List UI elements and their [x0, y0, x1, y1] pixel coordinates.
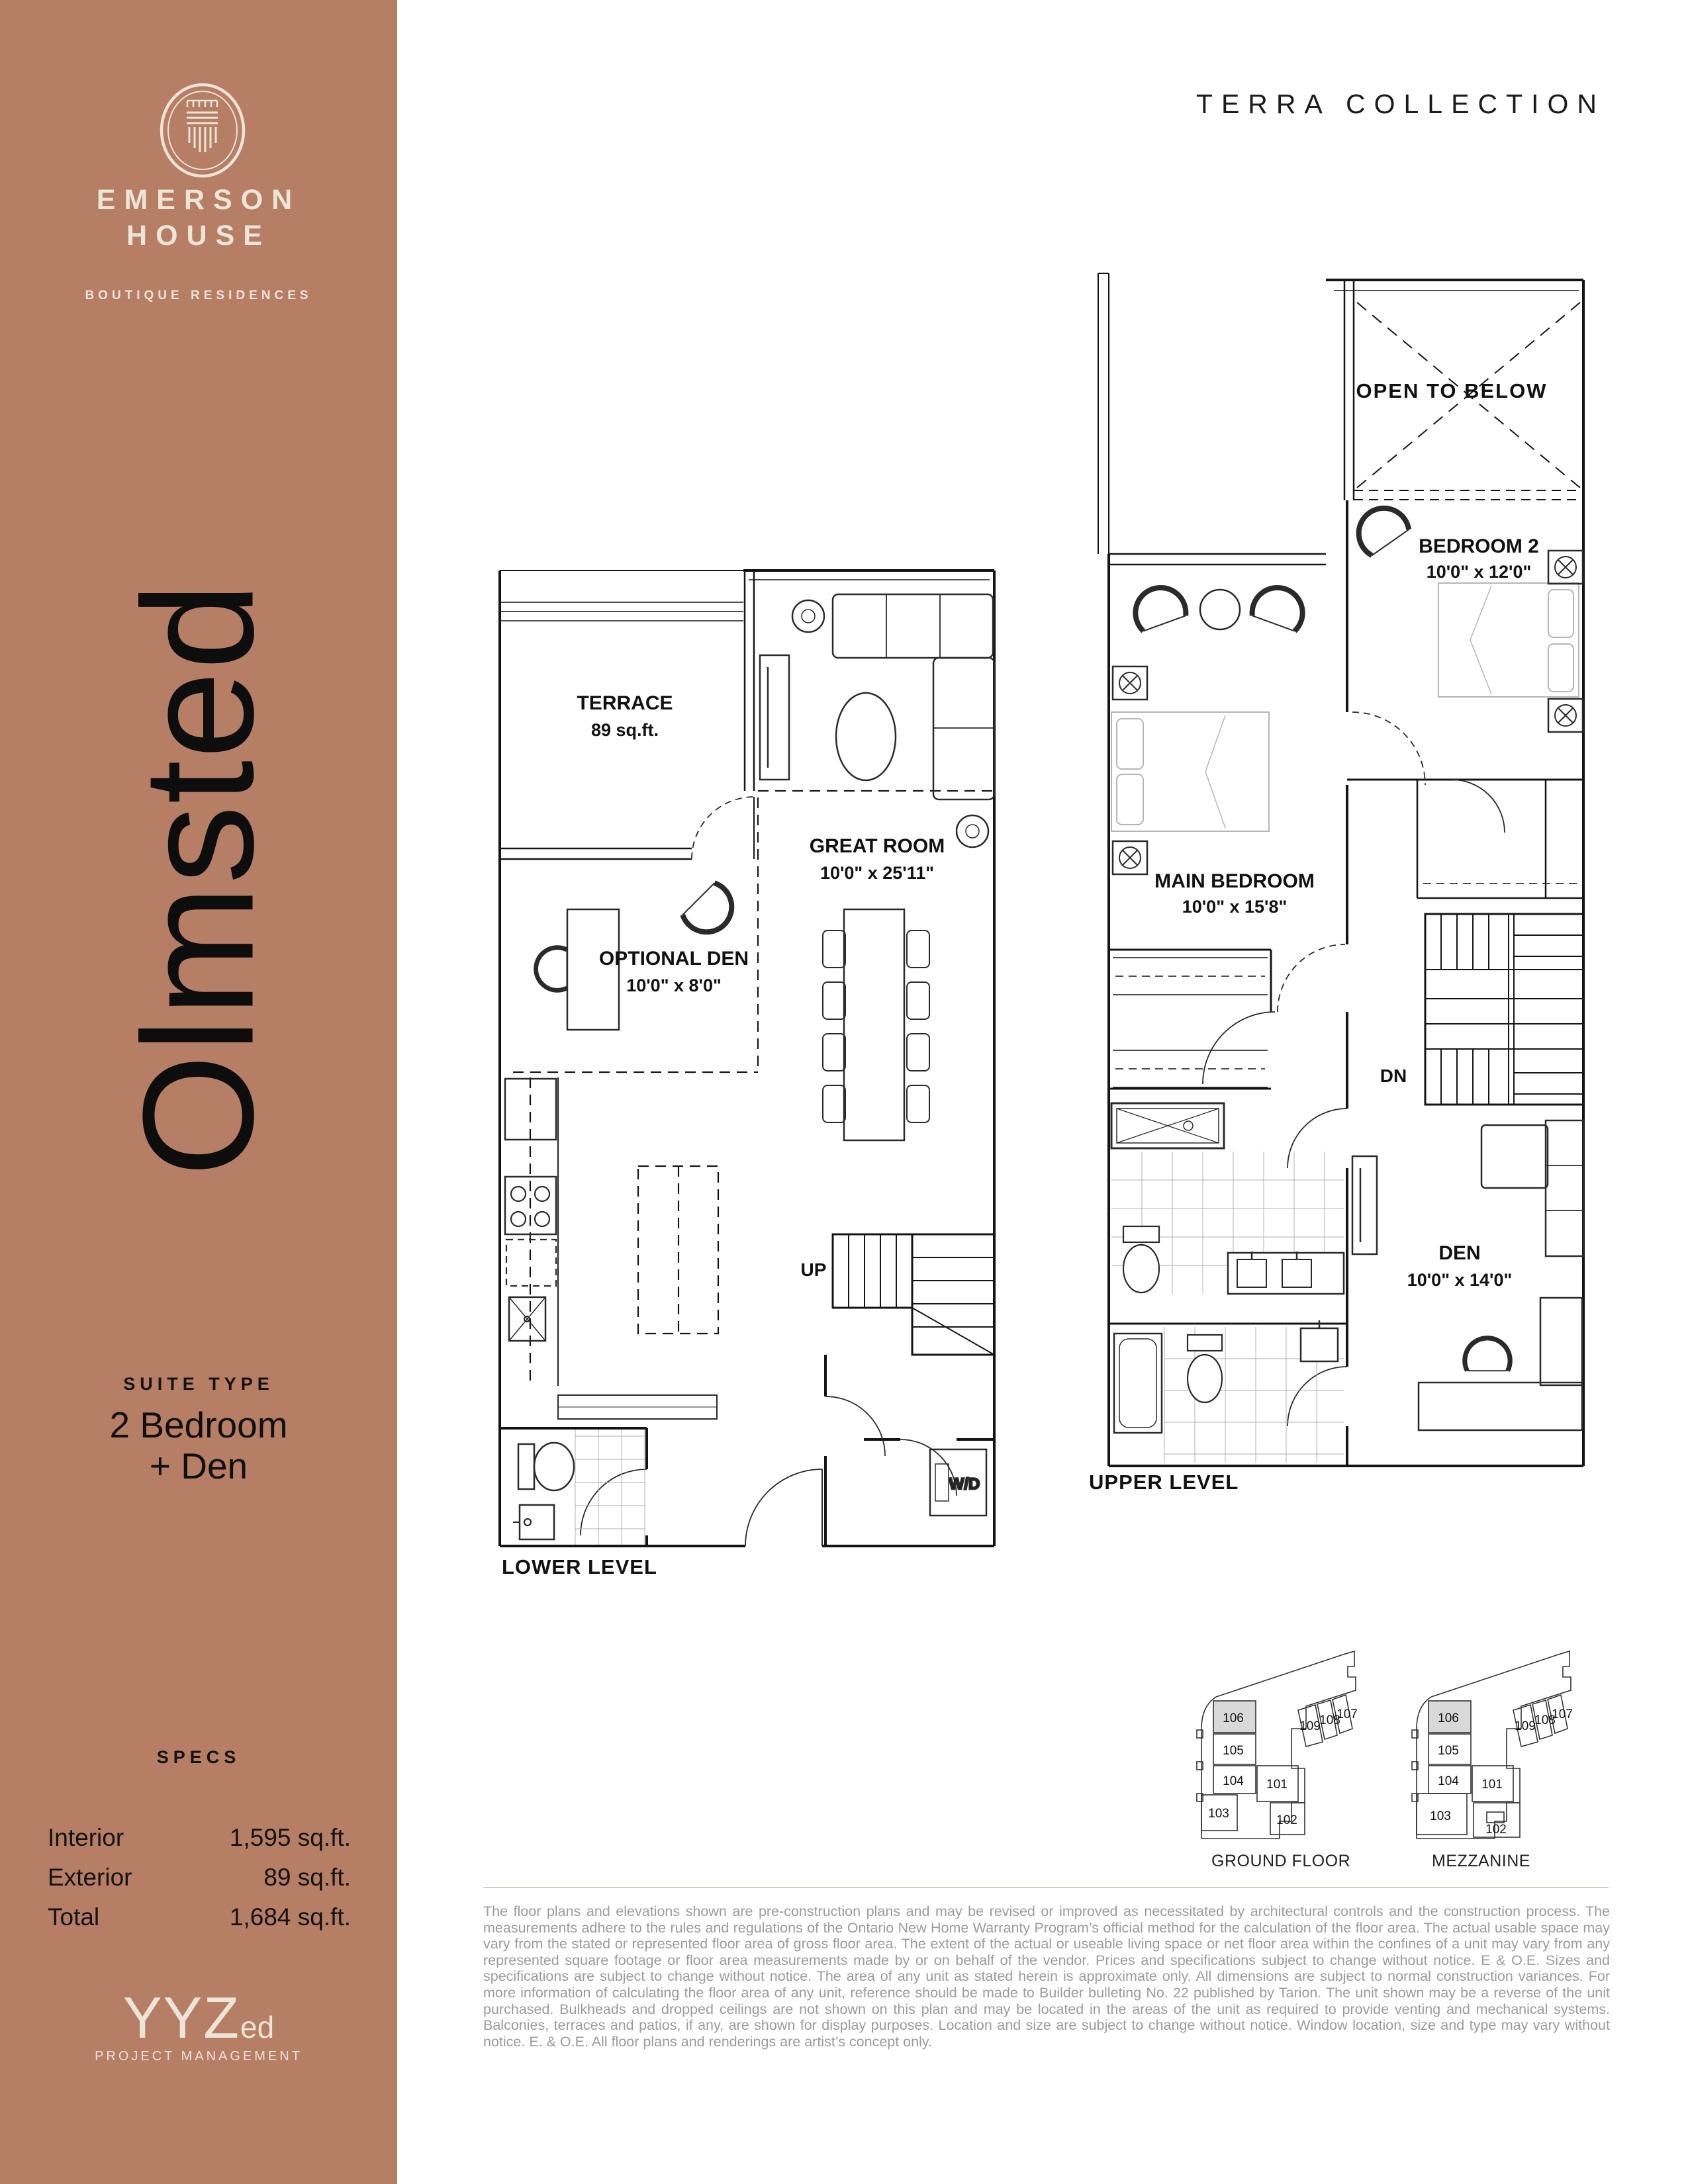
bed-icon — [1111, 712, 1269, 831]
suite-type-heading: SUITE TYPE — [0, 1374, 397, 1394]
ensuite-bathroom — [1111, 1103, 1344, 1294]
keyplan-mezzanine: 106 105 104 103 101 102 109 108 107 — [1412, 1651, 1573, 1839]
crest-crown — [187, 101, 218, 152]
dn-label: DN — [1380, 1066, 1407, 1086]
spec-value: 89 sq.ft. — [263, 1864, 351, 1903]
unit-number: 102 — [1485, 1823, 1507, 1837]
unit-number: 107 — [1336, 1707, 1358, 1721]
desk-icon — [1419, 1383, 1582, 1430]
side-table-icon — [1200, 590, 1240, 629]
dining-chairs — [823, 931, 929, 1122]
unit-number: 109 — [1515, 1719, 1536, 1733]
stairs-down — [1423, 884, 1583, 1105]
up-label: UP — [801, 1259, 827, 1280]
unit-number: 106 — [1438, 1711, 1459, 1725]
suite-name-vertical: Olmsted — [109, 581, 289, 1177]
desk-chair-icon — [1465, 1338, 1510, 1371]
spec-label: Exterior — [48, 1864, 132, 1903]
unit-number: 105 — [1438, 1744, 1459, 1758]
keyplan-ground-floor: 106 105 104 103 101 102 109 108 107 — [1197, 1651, 1358, 1839]
hall-closet-door-icon — [1452, 780, 1505, 833]
main-bedroom-dims: 10'0" x 15'8" — [1182, 897, 1288, 917]
desk-chair-icon — [536, 948, 567, 991]
terrace-louvre — [500, 602, 743, 621]
specs-heading: SPECS — [0, 1747, 397, 1768]
stairs-up — [833, 1234, 994, 1355]
great-room-dims: 10'0" x 25'11" — [820, 863, 934, 883]
footer-divider — [483, 1887, 1609, 1888]
bed-icon — [1438, 583, 1579, 697]
speaker-icon — [792, 600, 824, 632]
laundry-closet: W/D — [930, 1449, 986, 1516]
terrace-window — [500, 848, 692, 859]
unit-number: 103 — [1430, 1809, 1451, 1823]
wardrobe-closet — [1113, 958, 1268, 1087]
sidebar: EMERSON HOUSE BOUTIQUE RESIDENCES Olmste… — [0, 0, 397, 2184]
yyzed-logo-subtitle: PROJECT MANAGEMENT — [0, 2049, 397, 2064]
wd-label: W/D — [949, 1475, 980, 1493]
unit-number: 105 — [1223, 1744, 1244, 1758]
armchair-icon — [1349, 498, 1411, 557]
powder-room — [513, 1430, 645, 1545]
ceiling-light-icon — [1548, 551, 1583, 584]
upper-level-floorplan: OPEN TO BELOW BEDROOM 2 10'0" x 12'0" MA… — [1082, 268, 1589, 1489]
room-labels: OPEN TO BELOW BEDROOM 2 10'0" x 12'0" MA… — [1154, 379, 1547, 1290]
bedroom2-door-icon — [1352, 712, 1425, 785]
spec-label: Total — [48, 1903, 99, 1943]
tv-console-icon — [760, 655, 789, 780]
lower-level-floorplan: W/D TERRACE 89 sq.ft. GREAT ROOM 10'0" x… — [493, 569, 1003, 1549]
main-bedroom-door-icon — [1278, 944, 1345, 1012]
closet-door-icon — [1203, 1012, 1275, 1084]
kitchen — [505, 1077, 717, 1419]
collection-title: TERRA COLLECTION — [1196, 89, 1605, 120]
den-dims: 10'0" x 14'0" — [1407, 1270, 1513, 1290]
armchair-icon — [1129, 580, 1188, 632]
desk-icon — [567, 909, 619, 1030]
ceiling-light-icon — [1548, 699, 1583, 732]
dishwasher-icon — [506, 1240, 556, 1286]
entry-door-icon — [745, 1469, 822, 1546]
unit-number: 102 — [1276, 1813, 1297, 1827]
unit-number: 103 — [1208, 1807, 1229, 1821]
bedroom2-label: BEDROOM 2 — [1419, 535, 1539, 557]
yyzed-logo-main: YYZ — [123, 1985, 240, 2050]
ensuite-door-icon — [1288, 1109, 1347, 1168]
ceiling-light-icon — [1113, 841, 1147, 874]
toilet-icon — [518, 1444, 534, 1489]
keyplans: 106 105 104 103 101 102 109 108 107 — [1190, 1629, 1604, 1848]
optional-den-dims: 10'0" x 8'0" — [626, 976, 722, 995]
unit-number: 104 — [1223, 1774, 1244, 1788]
sofa-icon — [833, 594, 993, 658]
lower-level-title: LOWER LEVEL — [502, 1555, 657, 1579]
brand-name-line1: EMERSON — [0, 184, 397, 216]
den-label: DEN — [1438, 1242, 1480, 1264]
coffee-table-icon — [836, 693, 896, 780]
terrace-door-icon — [692, 797, 754, 859]
toilet-icon — [1188, 1335, 1222, 1351]
unit-number: 106 — [1223, 1711, 1244, 1725]
main-bedroom-furniture — [1111, 580, 1309, 1087]
spec-label: Interior — [48, 1824, 124, 1864]
optional-den-label: OPTIONAL DEN — [599, 948, 749, 970]
ceiling-light-icon — [1113, 666, 1147, 700]
sofa-icon — [1546, 1120, 1583, 1256]
suite-type-value: 2 Bedroom + Den — [0, 1404, 397, 1486]
armchair-icon — [1250, 580, 1309, 632]
armchair-icon — [680, 881, 742, 942]
brand-tagline: BOUTIQUE RESIDENCES — [0, 289, 397, 303]
sink-icon — [1282, 1259, 1311, 1287]
brand-name-line2: HOUSE — [0, 220, 397, 252]
second-bathroom — [1114, 1320, 1344, 1463]
sink-icon — [1301, 1328, 1338, 1361]
keyplan-mezzanine-label: MEZZANINE — [1432, 1852, 1530, 1871]
spec-value: 1,595 sq.ft. — [230, 1824, 351, 1864]
yyzed-logo: YYZed — [0, 1984, 397, 2052]
suite-type-line2: + Den — [0, 1445, 397, 1486]
suite-type-line1: 2 Bedroom — [0, 1404, 397, 1445]
spec-row-interior: Interior 1,595 sq.ft. — [48, 1824, 351, 1864]
bedroom-window — [1109, 554, 1326, 565]
sink-icon — [1237, 1259, 1266, 1287]
great-room-label: GREAT ROOM — [810, 835, 945, 857]
floorplan-brochure-page: EMERSON HOUSE BOUTIQUE RESIDENCES Olmste… — [0, 0, 1688, 2184]
unit-number: 107 — [1552, 1707, 1573, 1721]
bedroom2-furniture — [1349, 498, 1583, 732]
tile-floor — [575, 1430, 645, 1545]
bath2-door-icon — [1288, 1367, 1347, 1426]
walls — [500, 570, 994, 1546]
unit-number: 104 — [1438, 1774, 1459, 1788]
yyzed-logo-suffix: ed — [240, 2010, 274, 2044]
tv-console-icon — [1352, 1156, 1377, 1254]
main-bedroom-label: MAIN BEDROOM — [1154, 870, 1315, 892]
emerson-crest-icon — [151, 74, 254, 187]
legal-disclaimer: The floor plans and elevations shown are… — [483, 1903, 1610, 2050]
powder-door-icon — [581, 1469, 647, 1535]
desk-icon — [1540, 1298, 1582, 1385]
open-to-below-label: OPEN TO BELOW — [1356, 379, 1548, 402]
unit-number: 109 — [1299, 1719, 1321, 1733]
upper-level-title: UPPER LEVEL — [1089, 1471, 1239, 1494]
spec-row-total: Total 1,684 sq.ft. — [48, 1903, 351, 1943]
sofa-chaise-icon — [933, 658, 994, 799]
unit-number: 101 — [1266, 1778, 1288, 1792]
specs-table: Interior 1,595 sq.ft. Exterior 89 sq.ft.… — [48, 1824, 351, 1943]
sofa-icon — [1481, 1125, 1548, 1188]
terrace-label: TERRACE — [577, 692, 673, 714]
toilet-icon — [1123, 1226, 1159, 1242]
speaker-icon — [957, 815, 988, 847]
bedroom2-dims: 10'0" x 12'0" — [1427, 562, 1532, 582]
hall-door-icon — [825, 1396, 885, 1456]
unit-number: 101 — [1481, 1778, 1503, 1792]
spec-value: 1,684 sq.ft. — [230, 1903, 351, 1943]
terrace-dims: 89 sq.ft. — [591, 720, 659, 740]
dining-table-icon — [844, 909, 904, 1140]
keyplan-ground-floor-label: GROUND FLOOR — [1211, 1852, 1350, 1871]
spec-row-exterior: Exterior 89 sq.ft. — [48, 1864, 351, 1903]
